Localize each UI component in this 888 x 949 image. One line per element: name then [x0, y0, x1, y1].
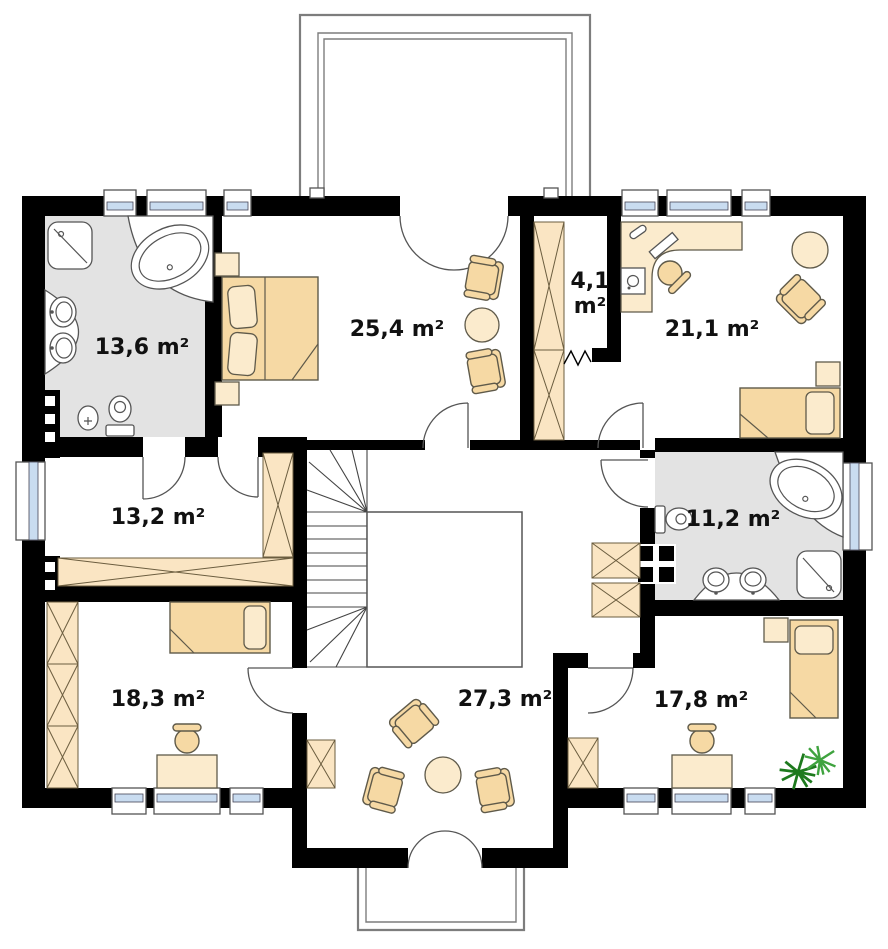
desk: [672, 755, 732, 788]
floor-void: [367, 512, 522, 667]
bedroom-lower-right-door: [588, 668, 633, 713]
shower: [48, 222, 92, 269]
room-label: 25,4 m²: [350, 317, 445, 342]
armchair: [386, 696, 440, 749]
railing-anchor: [310, 188, 324, 198]
wardrobe: [47, 664, 78, 726]
desk-chair: [173, 724, 201, 753]
armchair: [464, 255, 505, 302]
window: [112, 788, 146, 814]
bathroom-upper-door: [143, 437, 185, 499]
armchair: [361, 765, 405, 814]
room-label: 13,2 m²: [111, 505, 206, 530]
window: [224, 190, 251, 216]
wardrobe: [592, 583, 640, 617]
room-label: m²: [574, 294, 607, 319]
room-label: 4,1: [571, 269, 610, 294]
room-label: 18,3 m²: [111, 687, 206, 712]
nightstand: [215, 382, 239, 405]
floor-plan: 13,6 m² 25,4 m² 4,1 m² 21,1 m² 13,2 m² 1…: [0, 0, 888, 949]
shower: [797, 551, 841, 598]
armchair: [466, 347, 507, 394]
window: [745, 788, 775, 814]
single-bed: [170, 602, 270, 653]
round-table: [465, 308, 499, 342]
room-label: 11,2 m²: [686, 507, 781, 532]
corner-desk: [621, 222, 742, 312]
front-balcony-door: [408, 831, 482, 868]
toilet: [106, 396, 134, 436]
window: [104, 190, 136, 216]
room-label: 21,1 m²: [665, 317, 760, 342]
wardrobe: [263, 453, 293, 557]
window: [672, 788, 731, 814]
round-table: [425, 757, 461, 793]
window: [742, 190, 770, 216]
armchair: [475, 766, 516, 813]
wardrobe: [58, 558, 293, 586]
bathroom-lower-door: [601, 458, 655, 508]
hall-master-door: [423, 403, 468, 448]
hall-furniture: [361, 696, 515, 814]
window: [147, 190, 206, 216]
room-label: 17,8 m²: [654, 688, 749, 713]
desk-chair: [652, 255, 692, 295]
zigzag-wall-break: [564, 351, 591, 365]
round-table: [792, 232, 828, 268]
floor-plan-drawing: 13,6 m² 25,4 m² 4,1 m² 21,1 m² 13,2 m² 1…: [0, 0, 888, 949]
nightstand: [816, 362, 840, 386]
window: [667, 190, 731, 216]
window: [230, 788, 263, 814]
nightstand: [764, 618, 788, 642]
sink: [50, 297, 76, 327]
room-label: 27,3 m²: [458, 687, 553, 712]
window: [622, 190, 658, 216]
wardrobe: [534, 350, 564, 440]
single-bed: [790, 620, 838, 718]
armchair: [773, 273, 827, 327]
window: [624, 788, 658, 814]
nightstand: [215, 253, 239, 276]
window: [154, 788, 220, 814]
balcony-top: [300, 15, 590, 196]
single-bed: [740, 388, 840, 438]
wardrobe: [47, 602, 78, 664]
plant: [780, 737, 843, 789]
balcony-bottom: [358, 868, 524, 930]
desk-chair: [688, 724, 716, 753]
wardrobe: [307, 740, 335, 788]
bidet: [78, 406, 98, 430]
double-bed: [222, 277, 318, 380]
wardrobe: [534, 222, 564, 350]
wardrobe: [47, 726, 78, 788]
bedroom-lower-left-door: [248, 668, 293, 713]
sink: [50, 333, 76, 363]
desk-tray: [621, 268, 645, 294]
master-bedroom-door: [218, 437, 258, 497]
wardrobe: [568, 738, 598, 788]
desk: [157, 755, 217, 788]
railing-anchor: [544, 188, 558, 198]
staircase: [307, 450, 367, 667]
wardrobe: [592, 543, 640, 578]
room-label: 13,6 m²: [95, 335, 190, 360]
window: [843, 463, 872, 550]
window: [16, 462, 45, 540]
chimney-grid: [636, 544, 676, 584]
